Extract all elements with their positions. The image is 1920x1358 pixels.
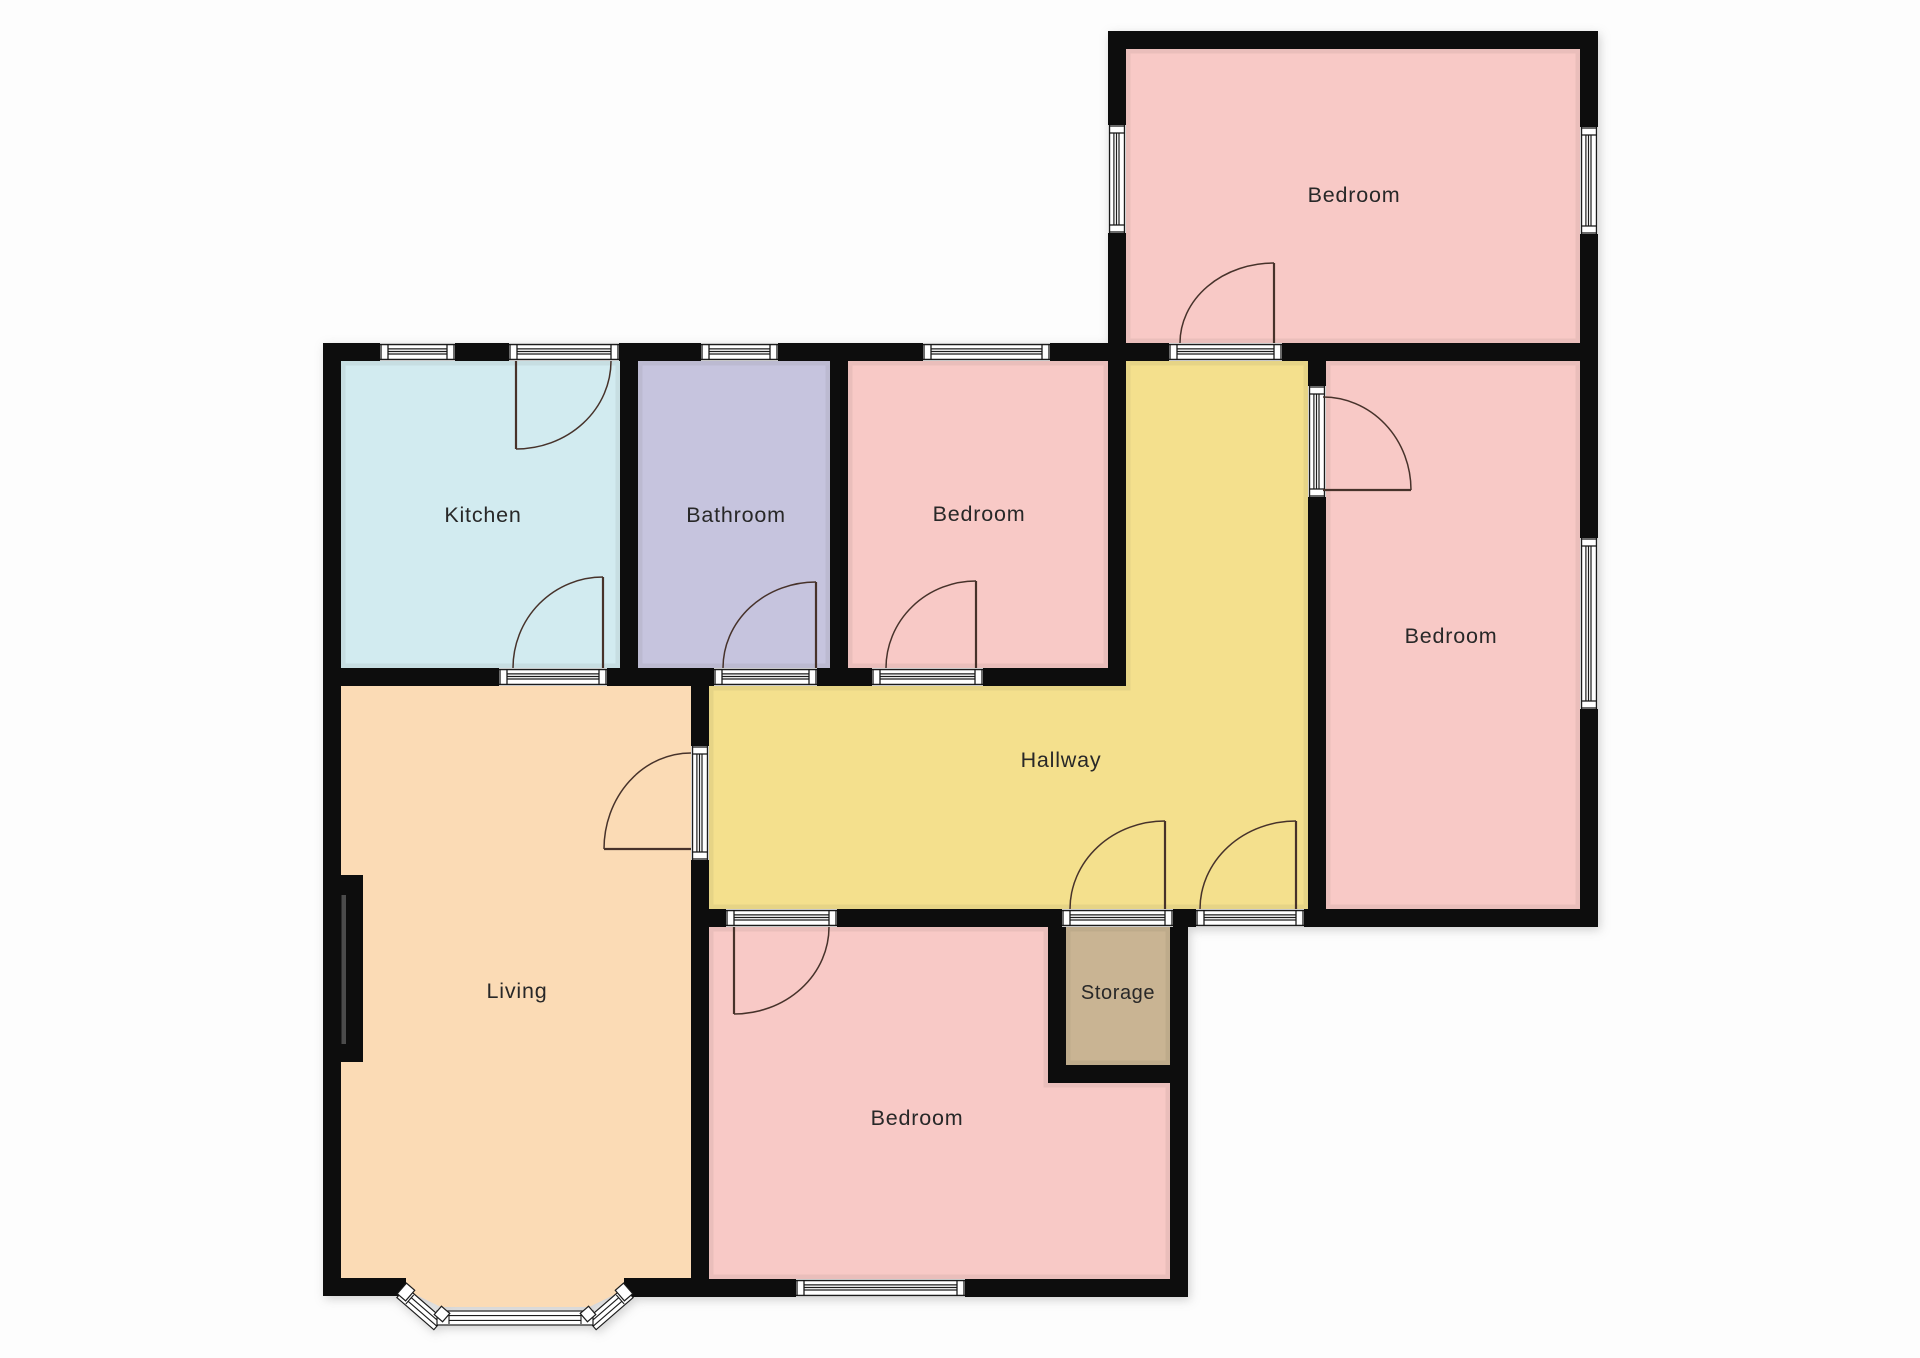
svg-text:Storage: Storage xyxy=(1081,982,1155,1004)
svg-text:Living: Living xyxy=(487,979,548,1003)
svg-text:Bedroom: Bedroom xyxy=(871,1106,964,1130)
svg-text:Bathroom: Bathroom xyxy=(686,503,786,527)
svg-text:Bedroom: Bedroom xyxy=(933,502,1026,526)
svg-text:Kitchen: Kitchen xyxy=(444,503,521,527)
svg-text:Bedroom: Bedroom xyxy=(1405,624,1498,648)
svg-text:Bedroom: Bedroom xyxy=(1308,183,1401,207)
svg-text:Hallway: Hallway xyxy=(1021,748,1102,772)
